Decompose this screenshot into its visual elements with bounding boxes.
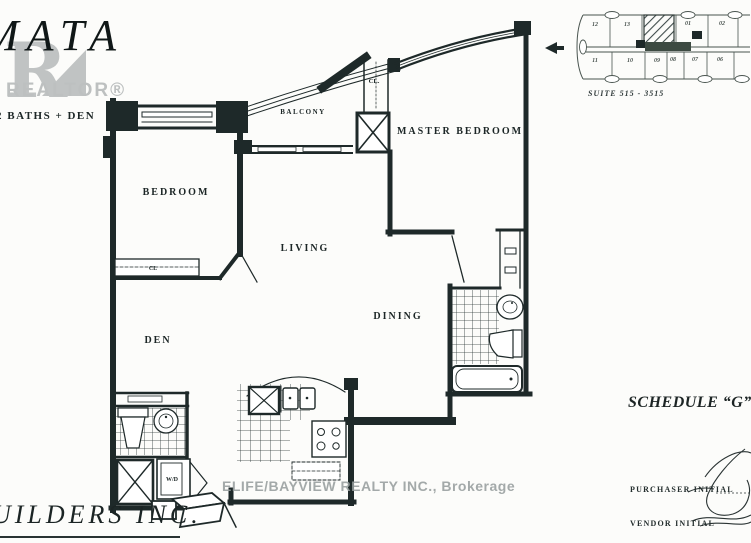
unit-tagline: 2 BATHS + DEN	[0, 110, 95, 122]
kitchen-sink	[281, 386, 315, 412]
schedule-title: SCHEDULE “G”	[628, 394, 751, 412]
hall-closet	[500, 230, 520, 288]
powder-room	[113, 393, 188, 458]
ensuite-bathroom	[448, 286, 530, 422]
range	[312, 421, 346, 457]
bedroom-window	[142, 112, 212, 117]
bedroom-door-swing	[240, 252, 257, 282]
unit-plan-walls	[103, 21, 531, 527]
keyplan-suite-range: SUITE 515 - 3515	[588, 89, 664, 98]
purchaser-initial-label: PURCHASER INITIAL	[630, 485, 734, 494]
floorplan-page: R	[0, 0, 751, 543]
suite-locator-arrow-icon	[545, 42, 564, 54]
room-label-dining: DINING	[363, 312, 433, 322]
keyplan-unit-number: 07	[688, 57, 702, 63]
builder-underline	[0, 536, 180, 538]
builder-name: UILDERS INC.	[0, 500, 202, 530]
laundry-shaft	[117, 460, 153, 504]
keyplan-unit-number: 13	[620, 22, 634, 28]
keyplan-unit-number: 01	[681, 21, 695, 27]
vendor-initial-label: VENDOR INITIAL	[630, 519, 715, 528]
keyplan-elevator	[692, 31, 702, 39]
room-label-master-bedroom: MASTER BEDROOM	[395, 127, 525, 137]
room-label-bedroom: BEDROOM	[136, 188, 216, 198]
closet-label-bedroom: CL	[143, 266, 163, 272]
brokerage-watermark: ELIFE/BAYVIEW REALTY INC., Brokerage	[222, 478, 515, 494]
shaft	[357, 113, 389, 152]
room-label-living: LIVING	[272, 244, 338, 254]
keyplan-unit-number: 06	[713, 57, 727, 63]
keyplan-unit-number: 02	[715, 21, 729, 27]
master-window-wall	[388, 21, 531, 72]
bathtub	[452, 366, 522, 392]
powder-sink	[154, 409, 178, 433]
keyplan-elevator	[636, 40, 645, 48]
bathroom-sink	[497, 295, 523, 319]
builder-logo-text: MATA	[0, 10, 124, 61]
purchaser-signature	[688, 449, 751, 515]
keyplan-unit-number: 12	[588, 22, 602, 28]
keyplan-unit-number: 11	[588, 58, 602, 64]
keyplan-highlighted-suite	[644, 15, 674, 45]
washer-dryer-label: W/D	[160, 477, 184, 483]
closet-label-master: CL.	[363, 79, 385, 86]
keyplan-unit-number: 09	[650, 58, 664, 64]
keyplan-unit-number: 10	[623, 58, 637, 64]
room-label-balcony: BALCONY	[271, 109, 335, 116]
master-door-swing	[452, 236, 464, 282]
realtor-wordmark: REALTOR®	[6, 80, 126, 102]
keyplan-unit-number: 08	[666, 57, 680, 63]
room-label-den: DEN	[133, 336, 183, 346]
balcony-sliding-door	[250, 146, 352, 153]
fridge	[249, 387, 279, 414]
